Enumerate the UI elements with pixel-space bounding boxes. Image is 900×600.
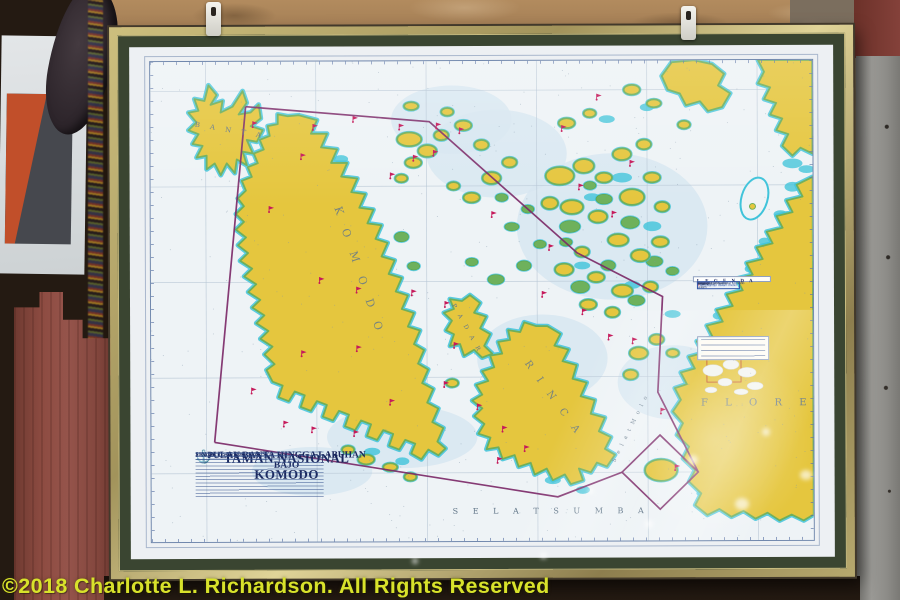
sounding-dot (417, 363, 418, 364)
sounding-dot (276, 291, 277, 292)
sounding-dot (415, 378, 416, 379)
glare-speck (800, 470, 812, 480)
sounding-dot (318, 428, 319, 429)
sounding-dot (375, 248, 376, 249)
sounding-dot (565, 229, 566, 230)
nautical-chart: B A N T A K O M O D O P A D A R R I N C … (150, 60, 814, 542)
sounding-dot (309, 296, 310, 297)
sounding-dot (623, 260, 624, 261)
hanger-clip-right (681, 6, 696, 40)
sounding-dot (628, 281, 629, 282)
sounding-dot (188, 351, 189, 352)
sounding-dot (758, 303, 759, 304)
glare-speck (688, 455, 698, 465)
sounding-dot (437, 216, 438, 217)
sounding-dot (351, 281, 352, 282)
photo-of-framed-chart: B A N T A K O M O D O P A D A R R I N C … (0, 0, 900, 600)
sounding-dot (337, 445, 338, 446)
sounding-dot (260, 349, 261, 350)
sounding-dot (371, 503, 372, 504)
sounding-dot (408, 475, 409, 476)
sounding-dot (479, 317, 480, 318)
sounding-dot (282, 296, 283, 297)
sounding-dot (386, 486, 387, 487)
sounding-dot (804, 293, 805, 294)
glare-speck (645, 520, 653, 528)
sounding-dot (720, 215, 721, 216)
sounding-dot (318, 443, 319, 444)
sounding-dot (368, 257, 369, 258)
sounding-dot (367, 491, 368, 492)
sounding-dot (711, 248, 712, 249)
glass-glare-corner (615, 338, 814, 540)
sounding-dot (763, 246, 764, 247)
sounding-dot (283, 215, 284, 216)
sounding-dot (760, 264, 761, 265)
sounding-dot (396, 269, 397, 270)
sounding-dot (306, 370, 307, 371)
sounding-dot (480, 379, 481, 380)
sounding-dot (389, 514, 390, 515)
sounding-dot (378, 295, 379, 296)
sounding-dot (288, 242, 289, 243)
chart-frame: B A N T A K O M O D O P A D A R R I N C … (109, 25, 855, 580)
sounding-dot (399, 515, 400, 516)
sounding-dot (170, 249, 171, 250)
sounding-dot (795, 283, 796, 284)
sounding-dot (258, 244, 259, 245)
sounding-dot (752, 274, 753, 275)
sounding-dot (266, 345, 267, 346)
sounding-dot (351, 356, 352, 357)
sounding-dot (276, 511, 277, 512)
sounding-dot (437, 364, 438, 365)
sounding-dot (382, 337, 383, 338)
sounding-dot (437, 536, 438, 537)
sounding-dot (648, 247, 649, 248)
sounding-dot (281, 428, 282, 429)
sounding-dot (644, 245, 645, 246)
copyright-watermark: ©2018 Charlotte L. Richardson. All Right… (2, 574, 550, 599)
sounding-dot (596, 208, 597, 209)
sounding-dot (400, 466, 401, 467)
glare-speck (762, 428, 770, 436)
sounding-dot (338, 371, 339, 372)
sounding-dot (226, 212, 227, 213)
sounding-dot (373, 349, 374, 350)
sounding-dot (391, 520, 392, 521)
sounding-dot (245, 498, 246, 499)
glare-speck (588, 488, 594, 494)
sounding-dot (163, 355, 164, 356)
sounding-dot (476, 419, 477, 420)
sounding-dot (454, 525, 455, 526)
sounding-dot (496, 297, 497, 298)
sounding-dot (708, 217, 709, 218)
legend: L E G E N D A ⚓Jangkar▪Lokasi selam✦Suar… (693, 276, 771, 282)
sounding-dot (385, 429, 386, 430)
sounding-dot (254, 240, 255, 241)
sounding-dot (417, 425, 418, 426)
sounding-dot (712, 295, 713, 296)
sounding-dot (301, 304, 302, 305)
hanger-clip-left (206, 2, 221, 36)
sounding-dot (330, 499, 331, 500)
sounding-dot (536, 245, 537, 246)
glare-speck (735, 498, 749, 510)
sounding-dot (165, 460, 166, 461)
glass-glare-top (150, 60, 812, 206)
sounding-dot (614, 232, 615, 233)
sounding-dot (408, 354, 409, 355)
glare-speck (412, 558, 418, 564)
sounding-dot (396, 527, 397, 528)
sounding-dot (305, 252, 306, 253)
sounding-dot (246, 221, 247, 222)
wood-plank (14, 292, 112, 600)
sounding-dot (443, 519, 444, 520)
sounding-dot (203, 536, 204, 537)
sounding-dot (260, 376, 261, 377)
sounding-dot (269, 269, 270, 270)
sounding-dot (769, 209, 770, 210)
sounding-dot (310, 273, 311, 274)
sounding-dot (356, 420, 357, 421)
sounding-dot (364, 246, 365, 247)
sounding-dot (330, 226, 331, 227)
glare-speck (540, 552, 547, 559)
chart-paper: B A N T A K O M O D O P A D A R R I N C … (129, 45, 835, 559)
sounding-dot (481, 490, 482, 491)
sounding-dot (467, 485, 468, 486)
sounding-dot (205, 434, 206, 435)
sounding-dot (678, 247, 679, 248)
sounding-dot (520, 214, 521, 215)
sounding-dot (461, 443, 462, 444)
sounding-dot (724, 240, 725, 241)
sounding-dot (548, 288, 549, 289)
sounding-dot (266, 501, 267, 502)
sounding-dot (403, 506, 404, 507)
sounding-dot (213, 333, 214, 334)
sounding-dot (334, 305, 335, 306)
sounding-dot (213, 309, 214, 310)
sounding-dot (242, 351, 243, 352)
sounding-dot (486, 246, 487, 247)
sounding-dot (227, 211, 228, 212)
sounding-dot (170, 466, 171, 467)
sounding-dot (429, 524, 430, 525)
sounding-dot (634, 307, 635, 308)
sounding-dot (469, 307, 470, 308)
colorful-debris-strip (88, 0, 103, 388)
sounding-dot (474, 354, 475, 355)
sounding-dot (290, 445, 291, 446)
sounding-dot (209, 402, 210, 403)
sounding-dot (654, 261, 655, 262)
sounding-dot (491, 481, 492, 482)
sounding-dot (394, 341, 395, 342)
sounding-dot (583, 229, 584, 230)
sounding-dot (445, 430, 446, 431)
sounding-dot (438, 437, 439, 438)
sounding-dot (246, 505, 247, 506)
sounding-dot (699, 270, 700, 271)
sounding-dot (386, 401, 387, 402)
sounding-dot (403, 229, 404, 230)
sounding-dot (465, 459, 466, 460)
sounding-dot (660, 252, 661, 253)
sounding-dot (447, 354, 448, 355)
legend-note: Kedalaman dalam meter (697, 281, 740, 289)
title-notes-text (196, 452, 324, 498)
sounding-dot (265, 374, 266, 375)
sounding-dot (464, 265, 465, 266)
sounding-dot (340, 449, 341, 450)
sounding-dot (641, 216, 642, 217)
red-post-top (854, 0, 900, 58)
sounding-dot (210, 256, 211, 257)
sounding-dot (601, 241, 602, 242)
sounding-dot (696, 244, 697, 245)
sounding-dot (463, 530, 464, 531)
sounding-dot (368, 337, 369, 338)
metal-post (856, 56, 900, 600)
sounding-dot (471, 276, 472, 277)
sounding-dot (172, 522, 173, 523)
poster-orange-shape (5, 93, 47, 244)
sounding-dot (263, 278, 264, 279)
sounding-dot (451, 369, 452, 370)
sounding-dot (481, 376, 482, 377)
sounding-dot (451, 251, 452, 252)
sounding-dot (401, 240, 402, 241)
sounding-dot (182, 365, 183, 366)
sounding-dot (479, 242, 480, 243)
sounding-dot (247, 215, 248, 216)
sounding-dot (189, 414, 190, 415)
sounding-dot (445, 339, 446, 340)
sounding-dot (401, 390, 402, 391)
sounding-dot (253, 344, 254, 345)
frame-inner-band: B A N T A K O M O D O P A D A R R I N C … (117, 33, 847, 572)
sounding-dot (616, 277, 617, 278)
sounding-dot (226, 280, 227, 281)
sounding-dot (486, 401, 487, 402)
sounding-dot (474, 431, 475, 432)
sounding-dot (459, 462, 460, 463)
sounding-dot (172, 488, 173, 489)
sounding-dot (240, 276, 241, 277)
sounding-dot (428, 298, 429, 299)
sounding-dot (519, 241, 520, 242)
sounding-dot (342, 322, 343, 323)
sounding-dot (365, 488, 366, 489)
sounding-dot (294, 532, 295, 533)
sounding-dot (180, 516, 181, 517)
sounding-dot (332, 327, 333, 328)
sounding-dot (493, 503, 494, 504)
sounding-dot (427, 292, 428, 293)
